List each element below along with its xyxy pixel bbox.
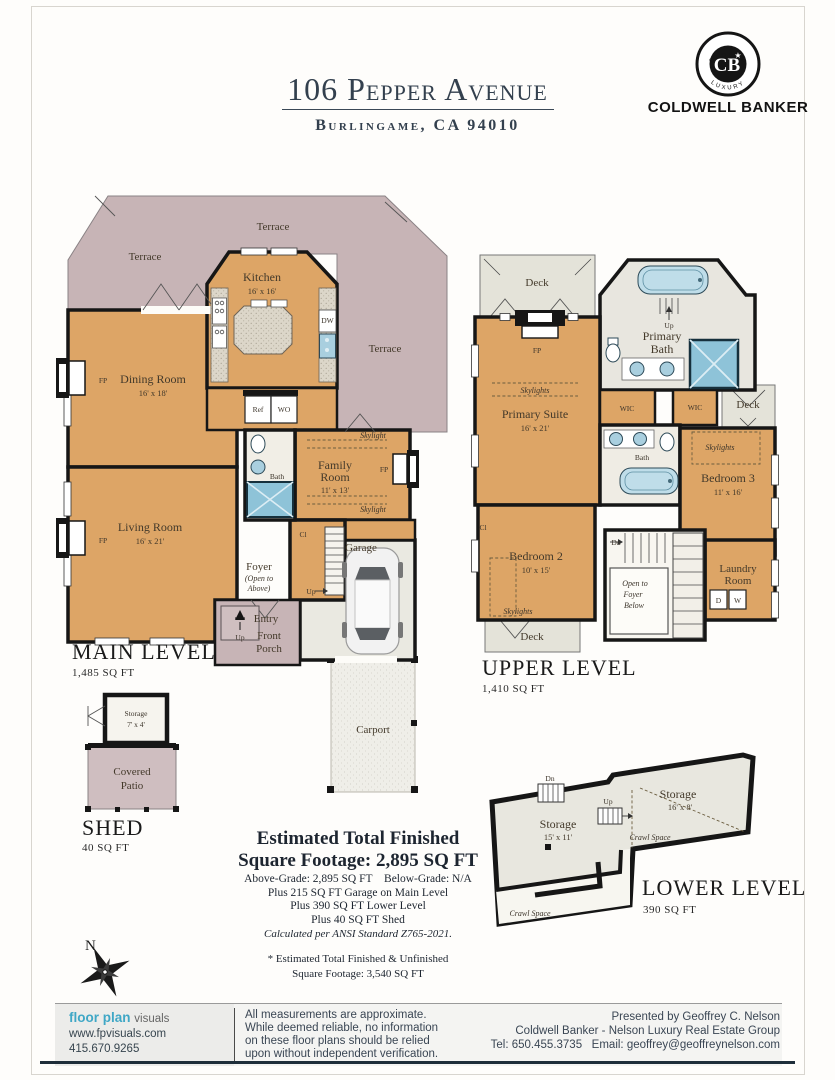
- upper-level-title: UPPER LEVEL: [482, 655, 637, 680]
- lower-level-plan: Storage 15' x 11' Storage 16' x 8' Dn Up…: [480, 740, 815, 940]
- coldwell-banker-logo: GLOBAL LUXURY CB ★ COLDWELL BANKER: [648, 28, 808, 120]
- post: [545, 844, 551, 850]
- summary-line-2: Plus 215 SQ FT Garage on Main Level: [213, 887, 503, 900]
- family-label-2: Room: [320, 470, 350, 484]
- upper-closet-label: Cl: [479, 523, 486, 532]
- kitchen-dim: 16' x 16': [248, 286, 277, 296]
- summary-line-4: Plus 40 SQ FT Shed: [213, 914, 503, 927]
- sqft-summary: Estimated Total Finished Square Footage:…: [213, 828, 503, 981]
- dn-label: Dn: [611, 538, 620, 547]
- wic2-label: WIC: [688, 403, 703, 412]
- foyer-open-1: (Open to: [245, 574, 273, 583]
- terrace-top-label: Terrace: [257, 221, 290, 233]
- disclaimer-line-3: on these floor plans should be relied: [245, 1035, 475, 1048]
- deck-top-label: Deck: [525, 277, 549, 289]
- garage-label: Garage: [345, 542, 377, 554]
- crawl-space-label-2: Crawl Space: [509, 909, 551, 918]
- terrace-right-label: Terrace: [369, 343, 402, 355]
- fpvisuals-phone: 415.670.9265: [69, 1043, 224, 1055]
- primary-shower-icon: [690, 340, 738, 388]
- dining-dim: 16' x 18': [139, 388, 168, 398]
- summary-note-1: * Estimated Total Finished & Unfinished: [213, 953, 503, 966]
- washer-label: W: [734, 596, 742, 605]
- compass-n-label: N: [85, 938, 96, 954]
- bed2-skylights-label: Skylights: [504, 607, 533, 616]
- upper-level-plan: Deck Deck Deck Up Primary Bath FP Skylig…: [470, 250, 790, 698]
- family-dim: 11' x 13': [321, 485, 350, 495]
- deck-bottom-label: Deck: [520, 631, 544, 643]
- fpvisuals-logo-main: floor plan: [69, 1010, 131, 1025]
- agent-company: Coldwell Banker - Nelson Luxury Real Est…: [485, 1024, 780, 1038]
- agent-info: Presented by Geoffrey C. Nelson Coldwell…: [485, 1004, 782, 1066]
- porch-up-label: Up: [235, 633, 244, 642]
- carport-label: Carport: [356, 724, 390, 736]
- primary-suite-label: Primary Suite: [502, 407, 568, 421]
- toilet-icon: [660, 433, 674, 451]
- kitchen-sink-icon: [320, 334, 336, 358]
- primary-bath-label-1: Primary: [643, 329, 682, 343]
- summary-ansi-note: Calculated per ANSI Standard Z765-2021.: [213, 928, 503, 941]
- bedroom2-dim: 10' x 15': [522, 565, 551, 575]
- summary-note-2: Square Footage: 3,540 SQ FT: [213, 968, 503, 981]
- porch-label-1: Front: [257, 630, 281, 642]
- primary-tub-icon: [638, 266, 708, 294]
- lower-dn-label: Dn: [545, 774, 554, 783]
- footer-bottom-bar: [40, 1061, 795, 1064]
- footer: floor plan visuals www.fpvisuals.com 415…: [55, 1003, 782, 1066]
- skylight-top-label: Skylight: [360, 431, 387, 440]
- primary-vanity: [622, 358, 684, 380]
- shed-plan: Storage 7' x 4' Covered Patio SHED 40 SQ…: [80, 690, 195, 855]
- crawl-space-label-1: Crawl Space: [629, 833, 671, 842]
- hall-bath-label: Bath: [635, 453, 649, 462]
- agent-contact[interactable]: Tel: 650.455.3735 Email: geoffrey@geoffr…: [485, 1038, 780, 1052]
- patio-label-2: Patio: [121, 780, 144, 792]
- summary-heading-1: Estimated Total Finished: [213, 828, 503, 850]
- wic1-label: WIC: [620, 404, 635, 413]
- dining-fireplace: [56, 358, 85, 398]
- fp-living-label: FP: [99, 536, 107, 545]
- floor-plan-sheet: 106 Pepper Avenue Burlingame, CA 94010 G…: [0, 0, 835, 1080]
- porch-label-2: Porch: [256, 643, 282, 655]
- laundry-label-2: Room: [725, 575, 752, 587]
- kitchen-label: Kitchen: [243, 270, 281, 284]
- garage-door-opening: [335, 656, 397, 663]
- living-room: [68, 467, 237, 642]
- shower-icon: [247, 482, 293, 517]
- summary-heading-2: Square Footage: 2,895 SQ FT: [213, 850, 503, 872]
- footer-disclaimer: All measurements are approximate. While …: [235, 1004, 485, 1066]
- summary-line-3: Plus 390 SQ FT Lower Level: [213, 900, 503, 913]
- shed-area: 40 SQ FT: [82, 842, 129, 854]
- suite-fp-label: FP: [533, 346, 541, 355]
- shed-title: SHED: [82, 815, 143, 840]
- living-label: Living Room: [118, 520, 183, 534]
- lower-level-title: LOWER LEVEL: [642, 875, 806, 900]
- open-foyer-1: Open to: [622, 579, 648, 588]
- logo-star-icon: ★: [734, 51, 741, 60]
- bedroom3-dim: 11' x 16': [714, 487, 743, 497]
- disclaimer-line-4: upon without independent verification.: [245, 1048, 475, 1061]
- primary-suite-dim: 16' x 21': [521, 423, 550, 433]
- bedroom2-label: Bedroom 2: [509, 549, 563, 563]
- car-icon: [342, 548, 403, 654]
- ref-label: Ref: [253, 405, 264, 414]
- laundry-label-1: Laundry: [719, 563, 757, 575]
- primary-bath-label-2: Bath: [651, 342, 674, 356]
- foyer-label: Foyer: [246, 561, 272, 573]
- bedroom3-label: Bedroom 3: [701, 471, 755, 485]
- open-foyer-2: Foyer: [622, 590, 643, 599]
- lower-dn-stairs: [538, 784, 564, 802]
- terrace-left-label: Terrace: [129, 251, 162, 263]
- shed-storage-dim: 7' x 4': [127, 720, 145, 729]
- sink-icon: [251, 460, 265, 474]
- dining-label: Dining Room: [120, 372, 186, 386]
- fpvisuals-block: floor plan visuals www.fpvisuals.com 415…: [55, 1004, 234, 1066]
- disclaimer-line-2: While deemed reliable, no information: [245, 1022, 475, 1035]
- patio-label-1: Covered: [113, 766, 151, 778]
- bath-label: Bath: [270, 472, 284, 481]
- fp-dining-label: FP: [99, 376, 107, 385]
- compass-star-icon: [69, 936, 141, 1006]
- lower-storage1-label: Storage: [540, 817, 577, 831]
- family-fireplace: [393, 450, 419, 488]
- toilet-icon: [251, 435, 265, 453]
- shed-storage-label: Storage: [125, 709, 149, 718]
- wo-label: WO: [278, 405, 291, 414]
- bed3-skylights-label: Skylights: [706, 443, 735, 452]
- skylight-bottom-label: Skylight: [360, 505, 387, 514]
- main-level-area: 1,485 SQ FT: [72, 667, 135, 679]
- summary-line-1: Above-Grade: 2,895 SQ FT Below-Grade: N/…: [213, 873, 503, 886]
- main-level-title: MAIN LEVEL: [72, 639, 216, 664]
- fpvisuals-website[interactable]: www.fpvisuals.com: [69, 1028, 224, 1040]
- suite-fireplace: [515, 310, 565, 338]
- dw-label: DW: [321, 316, 334, 325]
- lower-storage1-dim: 15' x 11': [544, 832, 573, 842]
- living-fireplace: [56, 518, 85, 558]
- lower-level-area: 390 SQ FT: [643, 904, 696, 916]
- range-icon: [213, 298, 227, 348]
- disclaimer-line-1: All measurements are approximate.: [245, 1009, 475, 1022]
- compass-rose: N: [55, 928, 155, 1006]
- lower-up-label: Up: [603, 797, 612, 806]
- primary-wc-icon: [606, 338, 620, 362]
- entry-label: Entry: [254, 613, 279, 625]
- fp-family-label: FP: [380, 465, 388, 474]
- shed-storage-room: [88, 695, 167, 743]
- lower-storage2-dim: 16' x 8': [668, 802, 693, 812]
- fpvisuals-logo: floor plan visuals: [69, 1010, 224, 1025]
- lower-storage2-label: Storage: [660, 787, 697, 801]
- brand-name: COLDWELL BANKER: [648, 99, 808, 116]
- fpvisuals-logo-sub: visuals: [134, 1013, 169, 1025]
- title-underline: [282, 109, 554, 110]
- presented-by: Presented by Geoffrey C. Nelson: [485, 1010, 780, 1024]
- closet-label: Cl: [299, 530, 306, 539]
- kitchen-island: [234, 300, 292, 354]
- deck-right-label: Deck: [736, 399, 760, 411]
- open-foyer-3: Below: [624, 601, 645, 610]
- foyer-up-label: Up: [306, 587, 315, 596]
- suite-skylights-label: Skylights: [521, 386, 550, 395]
- living-dim: 16' x 21': [136, 536, 165, 546]
- foyer-open-2: Above): [247, 584, 271, 593]
- upper-level-area: 1,410 SQ FT: [482, 683, 545, 695]
- dryer-label: D: [716, 596, 722, 605]
